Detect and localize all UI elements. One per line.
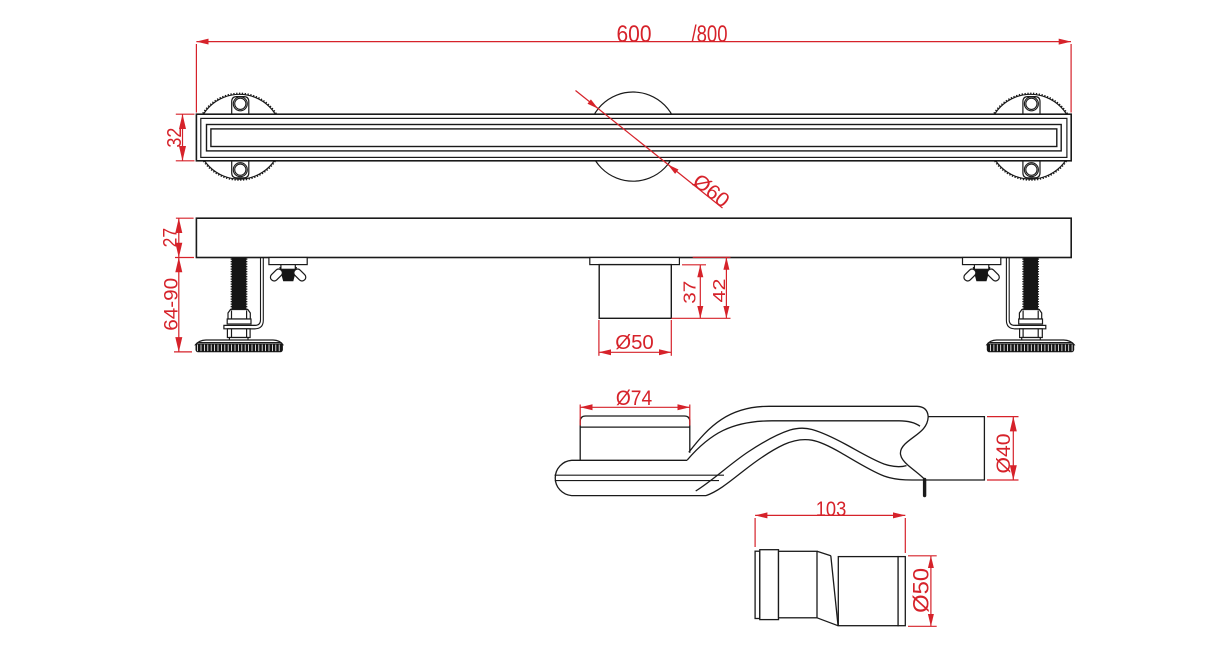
svg-text:37: 37 [680,281,700,304]
svg-text:27: 27 [159,228,181,248]
svg-text:/800: /800 [692,21,728,48]
svg-text:Ø50: Ø50 [909,568,934,613]
svg-text:42: 42 [709,279,729,303]
svg-text:Ø74: Ø74 [616,387,653,410]
svg-text:64-90: 64-90 [160,278,182,331]
svg-text:Ø50: Ø50 [615,332,654,354]
svg-text:32: 32 [163,128,186,148]
svg-text:Ø40: Ø40 [993,433,1015,473]
svg-text:103: 103 [816,498,847,521]
svg-text:600: 600 [617,21,652,48]
